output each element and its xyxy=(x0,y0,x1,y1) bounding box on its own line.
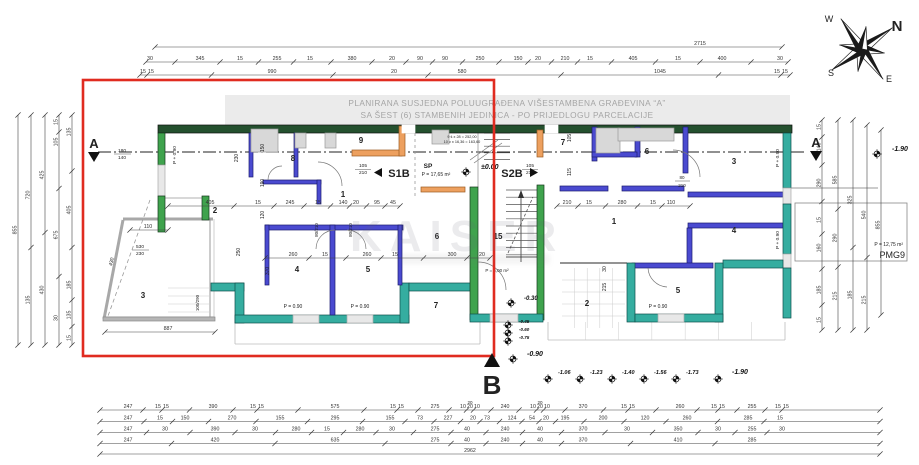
wall-f xyxy=(295,133,306,148)
dim-label: 10 xyxy=(460,404,466,410)
dim-label: 400 xyxy=(718,56,727,62)
dim-label: 90 xyxy=(417,56,423,62)
dim-label: 247 xyxy=(124,404,133,410)
plan-text: 190 xyxy=(260,179,266,188)
wall-t xyxy=(783,133,791,188)
wall-t xyxy=(400,283,409,323)
level-label: -1.73 xyxy=(686,370,699,376)
level-marker-icon xyxy=(580,376,583,379)
plan-text: 9 š x 28 = 252,00 xyxy=(447,135,476,139)
plan-text: E xyxy=(886,74,892,84)
level-marker-icon xyxy=(715,379,718,382)
plan-text: P + 0.90 xyxy=(775,231,781,249)
plan-text: 120 xyxy=(260,211,266,220)
plan-text: S1B xyxy=(388,168,409,180)
plan-text: 80/210 xyxy=(314,223,319,237)
dim-label: 110 xyxy=(144,224,152,230)
dim-label: 855 xyxy=(13,226,19,235)
plan-text: 230 xyxy=(234,154,240,163)
room-number: 3 xyxy=(141,291,146,300)
wall-w xyxy=(545,125,558,133)
dim-label: 250 xyxy=(476,56,485,62)
dim-label: 370 xyxy=(579,427,588,433)
level-marker-icon xyxy=(577,379,580,382)
dim-label: 390 xyxy=(211,427,220,433)
level-marker-icon xyxy=(508,322,511,325)
dim-label: 540 xyxy=(862,211,868,220)
room-number: 2 xyxy=(585,299,590,308)
section-a-left-triangle xyxy=(88,152,100,162)
plan-line xyxy=(508,197,533,253)
wall-lg xyxy=(347,315,373,323)
room-number: 9 xyxy=(359,136,364,145)
plan-text: 115 xyxy=(567,168,573,176)
dim-label: 210 xyxy=(563,200,572,206)
dim-label: 285 xyxy=(748,438,757,444)
dim-label: 10 xyxy=(474,404,480,410)
level-marker-icon xyxy=(463,172,466,175)
wall-lg xyxy=(783,188,791,204)
wall-o xyxy=(537,130,543,157)
level-marker-icon xyxy=(874,154,877,157)
level-marker-icon xyxy=(508,330,511,333)
dim-label: 40 xyxy=(464,427,470,433)
plan-text: P + 0.90 xyxy=(172,146,178,164)
floor-plan-stage: PLANIRANA SUSJEDNA POLUUGRAĐENA VIŠESTAM… xyxy=(0,0,919,465)
level-label: -0.30 xyxy=(524,296,538,302)
dim-label: 185 xyxy=(67,281,73,290)
stair-direction-arrowhead xyxy=(518,190,524,198)
room-number: 1 xyxy=(612,217,617,226)
dim-label: 15 xyxy=(782,69,788,75)
plan-text: 210 xyxy=(359,170,367,176)
level-marker-icon xyxy=(548,376,551,379)
plan-text: 140 xyxy=(118,155,126,161)
dim-label: 200 xyxy=(599,416,608,422)
plan-text: PMG9 xyxy=(879,250,905,260)
wall-g xyxy=(470,187,478,320)
dim-label: 290 xyxy=(817,179,823,188)
dim-label: 15 xyxy=(155,404,161,410)
dim-label: 15 xyxy=(777,416,783,422)
dim-label: 20 xyxy=(535,56,541,62)
dim-label: 15 xyxy=(140,69,146,75)
level-label: ±0.00 xyxy=(481,164,499,171)
dim-label: 247 xyxy=(124,438,133,444)
dim-label: 2715 xyxy=(694,41,706,47)
dim-label: 20 xyxy=(391,69,397,75)
wall-f xyxy=(325,133,336,148)
dim-label: 135 xyxy=(26,296,32,305)
dim-label: 185 xyxy=(848,291,854,300)
dim-label: 10 xyxy=(544,404,550,410)
wall-w xyxy=(402,125,415,133)
dim-label: 275 xyxy=(431,438,440,444)
plan-text: 105 xyxy=(359,163,367,169)
wall-lg xyxy=(658,314,684,322)
dim-label: 40 xyxy=(464,438,470,444)
level-marker-icon xyxy=(718,376,721,379)
dim-label: 30 xyxy=(147,56,153,62)
dim-label: 15 xyxy=(719,404,725,410)
dim-label: 20 xyxy=(353,200,359,206)
dim-label: 260 xyxy=(676,404,685,410)
wall-lg xyxy=(783,254,791,268)
dim-label: 30 xyxy=(54,315,60,321)
dim-label: 370 xyxy=(579,404,588,410)
dim-label: 30 xyxy=(624,427,630,433)
level-marker-icon xyxy=(676,376,679,379)
dim-label: 255 xyxy=(748,404,757,410)
note-banner-line-1: PLANIRANA SUSJEDNA POLUUGRAĐENA VIŠESTAM… xyxy=(348,98,665,108)
dim-label: 580 xyxy=(458,69,467,75)
wall-gray xyxy=(103,317,215,321)
level-label: -1.90 xyxy=(892,146,908,153)
level-label: -1.40 xyxy=(622,370,635,376)
wall-g xyxy=(158,196,165,232)
wall-g xyxy=(537,185,544,320)
plan-text: A xyxy=(811,135,821,150)
plan-text: 100/290 xyxy=(195,294,200,311)
dim-label: 15 xyxy=(237,56,243,62)
dim-label: 405 xyxy=(67,206,73,215)
dim-label: 270 xyxy=(228,416,237,422)
dim-label: 185 xyxy=(817,286,823,295)
dim-label: 135 xyxy=(67,128,73,137)
dim-label: 425 xyxy=(40,171,46,180)
dim-label: 410 xyxy=(674,438,683,444)
dim-label: 855 xyxy=(876,221,882,230)
dim-label: 20 xyxy=(537,404,543,410)
dim-label: 295 xyxy=(331,416,340,422)
plan-text: 230 xyxy=(136,251,144,257)
plan-text: 150 xyxy=(260,144,266,153)
dim-label: 15 xyxy=(817,124,823,130)
dim-label: 390 xyxy=(209,404,218,410)
section-a-right-triangle xyxy=(810,151,822,161)
plan-text: P + 0.90 xyxy=(775,149,781,167)
dim-label: 20 xyxy=(543,416,549,422)
level-marker-icon xyxy=(466,169,469,172)
dim-label: 73 xyxy=(484,416,490,422)
room-number: 4 xyxy=(295,265,300,274)
plan-text: P = 17,65 m² xyxy=(422,172,451,178)
door-swing-arc xyxy=(268,166,282,180)
level-marker-icon xyxy=(508,303,511,306)
dim-label: 15 xyxy=(148,69,154,75)
plan-text: N xyxy=(892,18,903,35)
room-number: 6 xyxy=(435,232,440,241)
dim-label: 720 xyxy=(26,191,32,200)
dim-label: 210 xyxy=(561,56,570,62)
dim-label: 195 xyxy=(561,416,570,422)
plan-text: SP xyxy=(424,163,433,170)
wall-b xyxy=(398,225,402,285)
wall-b xyxy=(330,225,335,315)
room-number: 4 xyxy=(732,226,737,235)
plan-line xyxy=(104,220,123,319)
dim-label: 30 xyxy=(777,56,783,62)
dim-label: 15 xyxy=(398,404,404,410)
dim-label: 420 xyxy=(211,438,220,444)
door-swing-arc xyxy=(648,268,667,287)
dim-label: 150 xyxy=(514,56,523,62)
dim-label: 2962 xyxy=(464,448,476,454)
level-marker-icon xyxy=(609,379,612,382)
dim-label: 95 xyxy=(374,200,380,206)
plan-text: P = 0.90 xyxy=(284,304,303,310)
dim-label: 15 xyxy=(817,217,823,223)
dim-label: 887 xyxy=(164,326,173,332)
plan-text: A xyxy=(89,136,99,151)
plan-text: 530 xyxy=(136,244,144,250)
room-number: 7 xyxy=(434,301,439,310)
level-marker-icon xyxy=(505,333,508,336)
wall-t xyxy=(627,263,635,322)
level-marker-icon xyxy=(877,151,880,154)
dim-label: 635 xyxy=(331,438,340,444)
dim-label: 73 xyxy=(417,416,423,422)
level-label: -0.60 xyxy=(519,327,530,332)
dim-label: 120 xyxy=(641,416,650,422)
door-swing-arc xyxy=(478,262,506,290)
dim-label: 15 xyxy=(774,69,780,75)
dim-label: 150 xyxy=(181,416,190,422)
level-label: -1.23 xyxy=(590,370,603,376)
dim-label: 30 xyxy=(252,427,258,433)
dim-label: 15 xyxy=(675,56,681,62)
dim-label: 300 xyxy=(448,252,457,258)
dim-label: 575 xyxy=(331,404,340,410)
level-marker-icon xyxy=(545,379,548,382)
plan-text: 180 xyxy=(118,148,126,154)
plan-text: 370 xyxy=(265,267,271,276)
wall-f xyxy=(596,128,620,153)
wall-t xyxy=(715,263,723,322)
dim-label: 20 xyxy=(389,56,395,62)
wall-t xyxy=(723,260,783,268)
plan-text: P = 0.90 xyxy=(649,304,668,310)
plan-text: 20 xyxy=(537,400,543,405)
level-marker-icon xyxy=(513,356,516,359)
dim-label: 585 xyxy=(833,176,839,185)
level-label: -1.90 xyxy=(732,369,748,376)
dim-label: 15 xyxy=(67,335,73,341)
wall-t xyxy=(783,204,791,254)
plan-text: 10 v x 16,36 = 163,60 xyxy=(444,140,481,144)
dim-label: 260 xyxy=(363,252,372,258)
wall-b xyxy=(632,263,713,268)
plan-text: P = 12,75 m² xyxy=(874,242,903,248)
level-label: -0.75 xyxy=(519,335,530,340)
room-number: 3 xyxy=(732,157,737,166)
dim-label: 280 xyxy=(292,427,301,433)
dim-label: 280 xyxy=(618,200,627,206)
level-label: -0.45 xyxy=(519,319,530,324)
dim-label: 240 xyxy=(501,438,510,444)
plan-text: S2B xyxy=(501,168,522,180)
dim-label: 155 xyxy=(276,416,285,422)
level-marker-icon xyxy=(641,379,644,382)
dim-label: 15 xyxy=(783,404,789,410)
dim-label: 135 xyxy=(67,311,73,320)
dim-label: 20 xyxy=(467,404,473,410)
level-label: -1.06 xyxy=(558,370,571,376)
dim-label: 110 xyxy=(667,200,675,206)
dim-label: 15 xyxy=(258,404,264,410)
wall-b xyxy=(687,228,692,265)
level-marker-icon xyxy=(505,341,508,344)
wall-lg xyxy=(293,315,319,323)
dim-label: 350 xyxy=(674,427,683,433)
dim-label: 345 xyxy=(196,56,205,62)
dim-label: 40 xyxy=(537,438,543,444)
dim-label: 215 xyxy=(833,292,839,301)
wall-o xyxy=(421,187,465,192)
dim-label: 260 xyxy=(289,252,298,258)
dim-label: 245 xyxy=(286,200,295,206)
plan-text: 80 xyxy=(679,175,685,180)
dim-label: 1045 xyxy=(654,69,666,75)
wall-f xyxy=(618,128,674,141)
dim-label: 15 xyxy=(255,200,261,206)
dim-label: 15 xyxy=(587,56,593,62)
dim-label: 15 xyxy=(322,252,328,258)
dim-label: 15 xyxy=(315,200,321,206)
dim-label: 15 xyxy=(621,404,627,410)
room-number: 6 xyxy=(645,147,650,156)
wall-b xyxy=(622,186,684,191)
dim-label: 215 xyxy=(862,296,868,305)
plan-text: P = 0.90 xyxy=(351,304,370,310)
wall-g xyxy=(158,133,165,165)
wall-b xyxy=(683,127,688,173)
dim-label: 155 xyxy=(386,416,395,422)
dim-label: 290 xyxy=(833,234,839,243)
dim-label: 15 xyxy=(629,404,635,410)
dim-label: 280 xyxy=(356,427,365,433)
dim-label: 15 xyxy=(817,317,823,323)
dim-label: 124 xyxy=(508,416,517,422)
room-number: 7 xyxy=(561,138,566,147)
dim-label: 15 xyxy=(711,404,717,410)
dim-label: 30 xyxy=(715,427,721,433)
plan-text: 215 xyxy=(602,283,608,292)
dim-label: 15 xyxy=(324,427,330,433)
level-marker-icon xyxy=(644,376,647,379)
room-number: 5 xyxy=(676,286,681,295)
wall-t xyxy=(409,283,472,291)
plan-text: P = 5,00 m² xyxy=(485,268,509,273)
wall-o xyxy=(352,150,402,156)
plan-text: 80/210 xyxy=(348,223,353,237)
dim-label: 255 xyxy=(273,56,282,62)
dim-label: 275 xyxy=(431,427,440,433)
dim-label: 45 xyxy=(390,200,396,206)
plan-text: 250 xyxy=(236,248,242,257)
dim-label: 430 xyxy=(40,286,46,295)
level-marker-icon xyxy=(510,359,513,362)
level-marker-icon xyxy=(505,325,508,328)
dim-label: 15 xyxy=(307,56,313,62)
wall-b xyxy=(560,186,608,191)
wall-t xyxy=(783,268,791,318)
dim-label: 247 xyxy=(124,416,133,422)
dim-label: 240 xyxy=(501,404,510,410)
dim-label: 15 xyxy=(250,404,256,410)
dim-label: 30 xyxy=(779,427,785,433)
plan-text: 20 xyxy=(467,400,473,405)
room-number: 5 xyxy=(366,265,371,274)
room-number: 8 xyxy=(291,154,296,163)
dim-label: 260 xyxy=(683,416,692,422)
dim-label: 15 xyxy=(54,119,60,125)
dim-label: 275 xyxy=(431,404,440,410)
level-marker-icon xyxy=(612,376,615,379)
dim-label: 105 xyxy=(54,138,60,147)
s1b-arrow xyxy=(374,168,382,177)
dim-label: 40 xyxy=(537,427,543,433)
plan-text: 30 xyxy=(602,266,608,272)
dim-label: 20 xyxy=(479,252,485,258)
dim-label: 675 xyxy=(54,231,60,240)
dim-label: 255 xyxy=(748,427,757,433)
dim-label: 15 xyxy=(163,404,169,410)
dim-label: 30 xyxy=(162,427,168,433)
level-marker-icon xyxy=(673,379,676,382)
dim-label: 15 xyxy=(157,416,163,422)
dim-label: 380 xyxy=(348,56,357,62)
dim-label: 15 xyxy=(775,404,781,410)
plan-text: 210 xyxy=(678,183,686,188)
dim-label: 140 xyxy=(339,200,348,206)
dim-label: 325 xyxy=(848,196,854,205)
dim-label: 30 xyxy=(389,427,395,433)
wall-lg xyxy=(158,165,165,196)
level-marker-icon xyxy=(511,300,514,303)
dim-label: 160 xyxy=(817,244,823,253)
dim-label: 54 xyxy=(529,416,535,422)
dim-label: 20 xyxy=(470,416,476,422)
floor-plan-drawing: PLANIRANA SUSJEDNA POLUUGRAĐENA VIŠESTAM… xyxy=(0,0,919,465)
plan-text: W xyxy=(825,14,834,24)
dim-label: 15 xyxy=(392,252,398,258)
dim-label: 405 xyxy=(629,56,638,62)
dim-label: 247 xyxy=(124,427,133,433)
dim-label: 15 xyxy=(390,404,396,410)
dim-label: 370 xyxy=(579,438,588,444)
dim-label: 227 xyxy=(444,416,453,422)
note-banner-line-2: SA ŠEST (6) STAMBENIH JEDINICA - PO PRIJ… xyxy=(361,110,654,120)
room-number: 2 xyxy=(213,206,218,215)
dim-label: 990 xyxy=(268,69,277,75)
dim-label: 15 xyxy=(586,200,592,206)
level-label: -1.56 xyxy=(654,370,667,376)
level-label: -0.90 xyxy=(527,351,543,358)
dim-label: 240 xyxy=(501,427,510,433)
wall-b xyxy=(688,192,783,197)
door-swing-arc xyxy=(318,162,342,186)
dim-label: 90 xyxy=(442,56,448,62)
wall-b xyxy=(263,180,321,184)
dim-label: 15 xyxy=(650,200,656,206)
level-marker-icon xyxy=(508,338,511,341)
wall-t xyxy=(235,315,409,323)
room-number: 1 xyxy=(341,190,346,199)
dim-label: 10 xyxy=(530,404,536,410)
plan-text: B xyxy=(483,370,502,400)
dim-label: 285 xyxy=(744,416,753,422)
